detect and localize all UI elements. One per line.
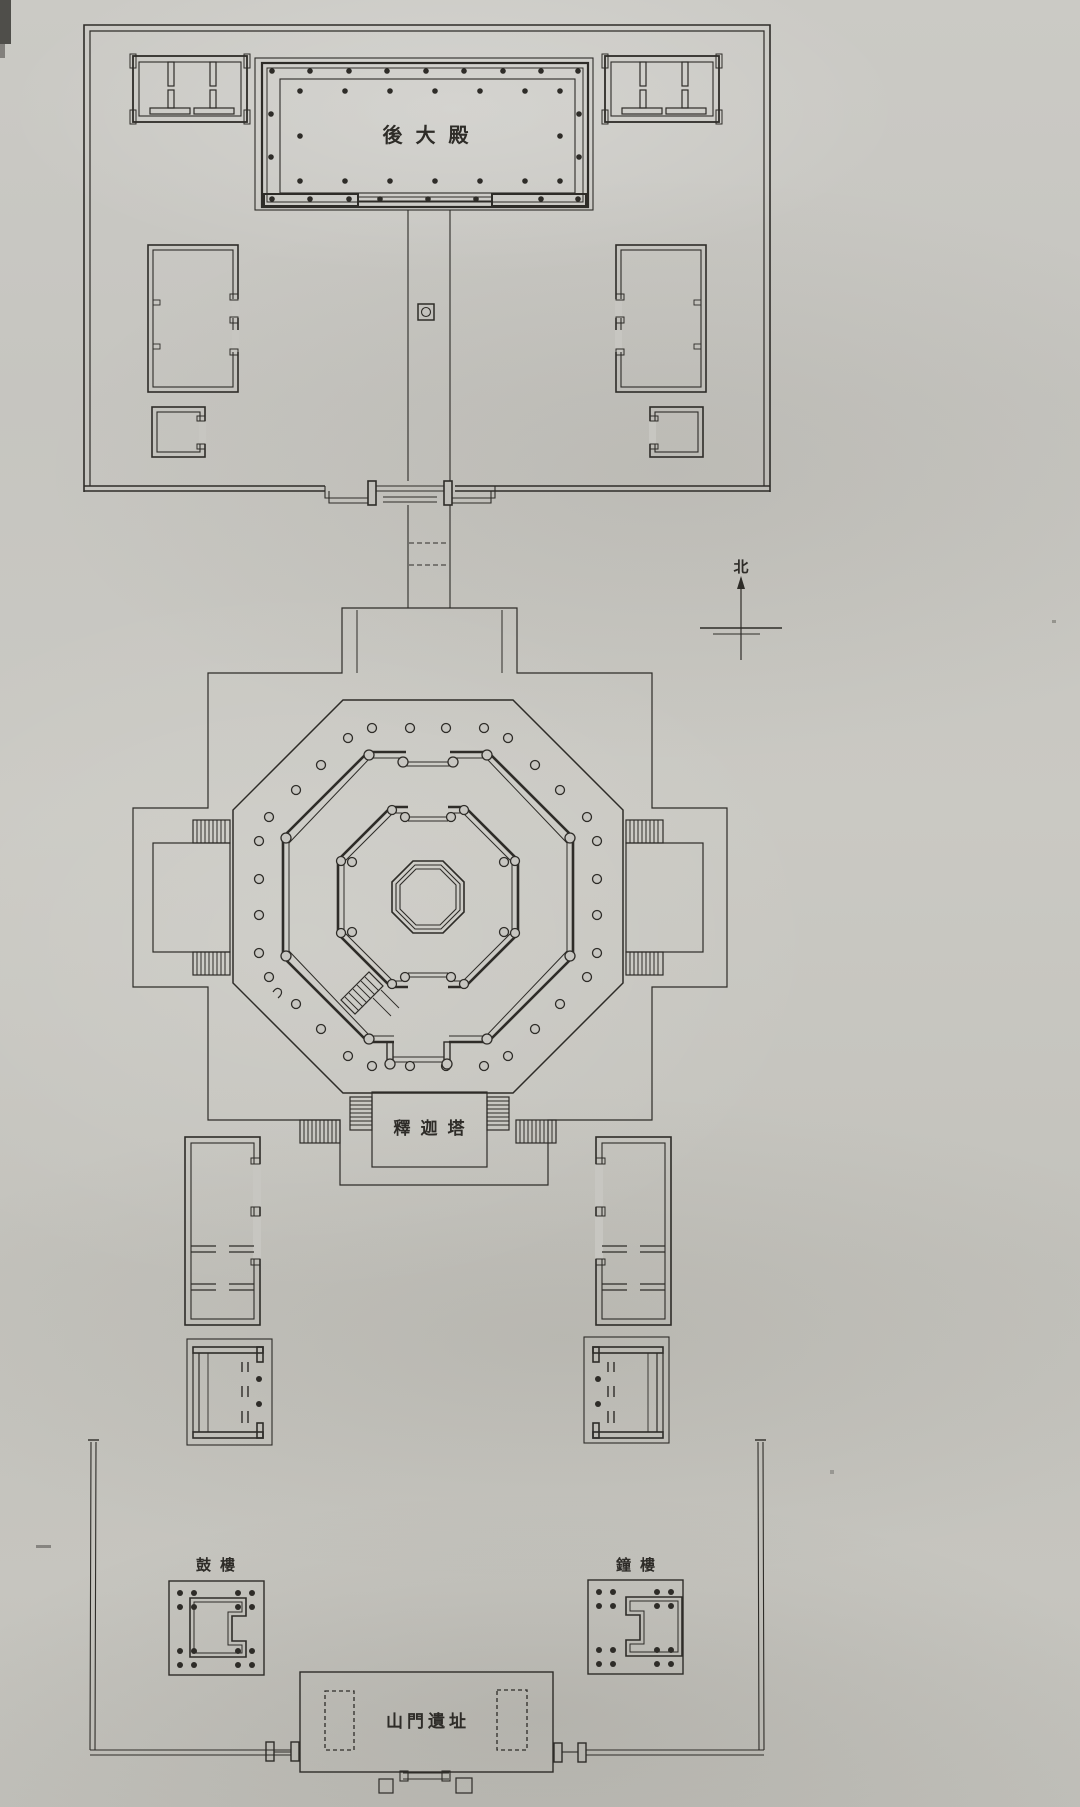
- bell-tower: [588, 1580, 683, 1674]
- axial-walkway: [408, 210, 450, 608]
- drum-tower-label: 鼓樓: [196, 1556, 244, 1574]
- south-vestibule: [387, 1042, 450, 1066]
- pagoda-body: [233, 700, 623, 1093]
- east-square-hall: [649, 407, 703, 457]
- north-arrow: [700, 576, 782, 660]
- pagoda-label: 釋迦塔: [394, 1118, 475, 1139]
- scanned-site-plan-page: 後大殿 釋迦塔 鼓樓 鐘樓 山門遺址 北: [0, 0, 1080, 1807]
- porch-column-ring: [255, 724, 602, 1071]
- east-porch-south-stair: [626, 952, 663, 975]
- mountain-gate: [300, 1672, 553, 1793]
- west-porch-south-stair: [193, 952, 230, 975]
- wall-column-circles: [281, 750, 575, 1069]
- west-porch-north-stair: [193, 820, 230, 843]
- south-platform-west-stair: [350, 1097, 372, 1130]
- site-plan-drawing: 後大殿 釋迦塔 鼓樓 鐘樓 山門遺址 北: [0, 0, 1080, 1807]
- east-tall-hall: [595, 1137, 671, 1325]
- west-tall-hall: [185, 1137, 261, 1325]
- drum-tower: [169, 1581, 264, 1675]
- north-label: 北: [733, 558, 748, 576]
- upper-right-small-hall: [602, 54, 722, 124]
- west-small-hall: [187, 1339, 272, 1445]
- west-wing-hall: [148, 245, 239, 392]
- bell-tower-label: 鐘樓: [616, 1556, 664, 1574]
- east-small-hall: [584, 1337, 669, 1443]
- pagoda-terrace: [133, 608, 727, 1185]
- west-square-hall: [152, 407, 206, 457]
- scan-artifacts: [0, 0, 1056, 1548]
- east-wing-hall: [615, 245, 706, 392]
- upper-left-small-hall: [130, 54, 250, 124]
- stele-base: [418, 304, 434, 320]
- rear-courtyard-wall: [84, 25, 770, 505]
- plan-labels: 後大殿 釋迦塔 鼓樓 鐘樓 山門遺址 北: [196, 123, 749, 1732]
- east-porch-north-stair: [626, 820, 663, 843]
- gate-label: 山門遺址: [386, 1711, 470, 1732]
- rear-hall-label: 後大殿: [383, 123, 482, 147]
- terrace-south-east-stair: [516, 1120, 556, 1143]
- south-platform-east-stair: [487, 1097, 509, 1130]
- terrace-south-west-stair: [300, 1120, 340, 1143]
- plan-linework: [84, 25, 782, 1793]
- courtyard-gate: [368, 481, 452, 505]
